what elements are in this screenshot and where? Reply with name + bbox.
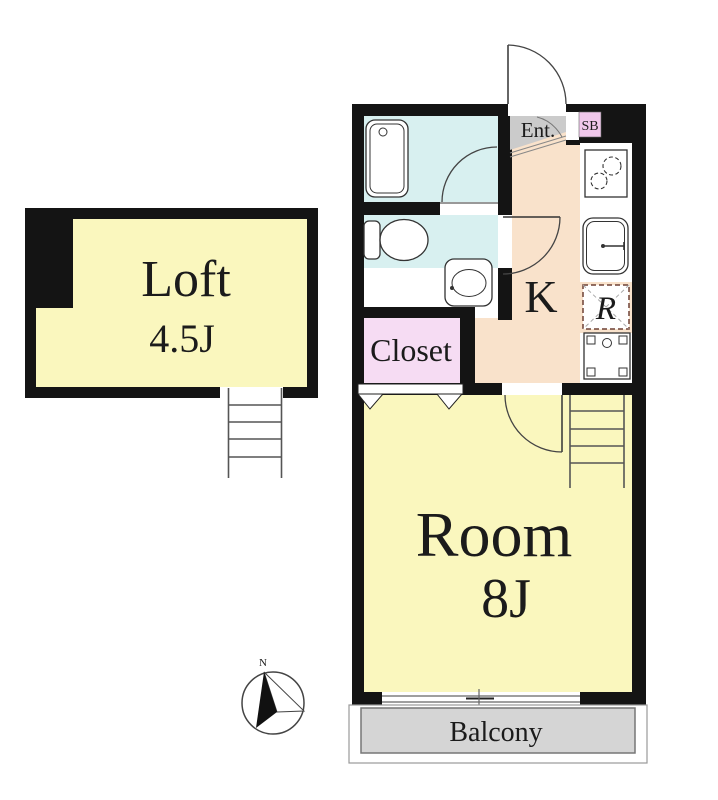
kitchen-floor <box>512 116 580 383</box>
entrance-label: Ent. <box>521 118 555 142</box>
toilet-icon <box>364 220 428 261</box>
refrigerator-icon: R <box>583 285 629 329</box>
kitchen-counter: R <box>580 143 632 380</box>
compass-north-label: N <box>259 657 267 669</box>
room-door-opening <box>502 383 562 395</box>
balcony-label: Balcony <box>449 717 542 748</box>
floorplan-drawing: Loft 4.5J <box>0 0 718 800</box>
bath-door-opening <box>440 202 498 215</box>
room-size-label: 8J <box>481 568 531 630</box>
kitchen-floor-lower <box>475 318 512 383</box>
loft-area: Loft 4.5J <box>25 208 318 478</box>
floorplan-page: Loft 4.5J <box>0 0 718 800</box>
entrance-door-arc <box>508 45 566 104</box>
loft-ladder-icon <box>229 388 282 478</box>
kitchen-label: K <box>524 271 557 322</box>
loft-label: Loft <box>141 251 231 308</box>
stove-icon <box>585 150 627 197</box>
shoe-box-label: SB <box>581 119 598 134</box>
loft-size-label: 4.5J <box>149 316 215 361</box>
closet-label: Closet <box>370 332 452 368</box>
compass-icon: N <box>242 657 304 734</box>
bathtub-icon <box>366 120 408 197</box>
refrigerator-label: R <box>595 291 616 327</box>
entrance-side-niche <box>566 112 579 140</box>
balcony-area: Balcony <box>349 705 647 763</box>
room-label: Room <box>416 499 572 570</box>
washbasin-icon <box>445 259 492 306</box>
washing-machine-icon <box>584 333 630 379</box>
loft-ladder-opening <box>220 387 283 398</box>
kitchen-sink-icon <box>583 218 628 274</box>
